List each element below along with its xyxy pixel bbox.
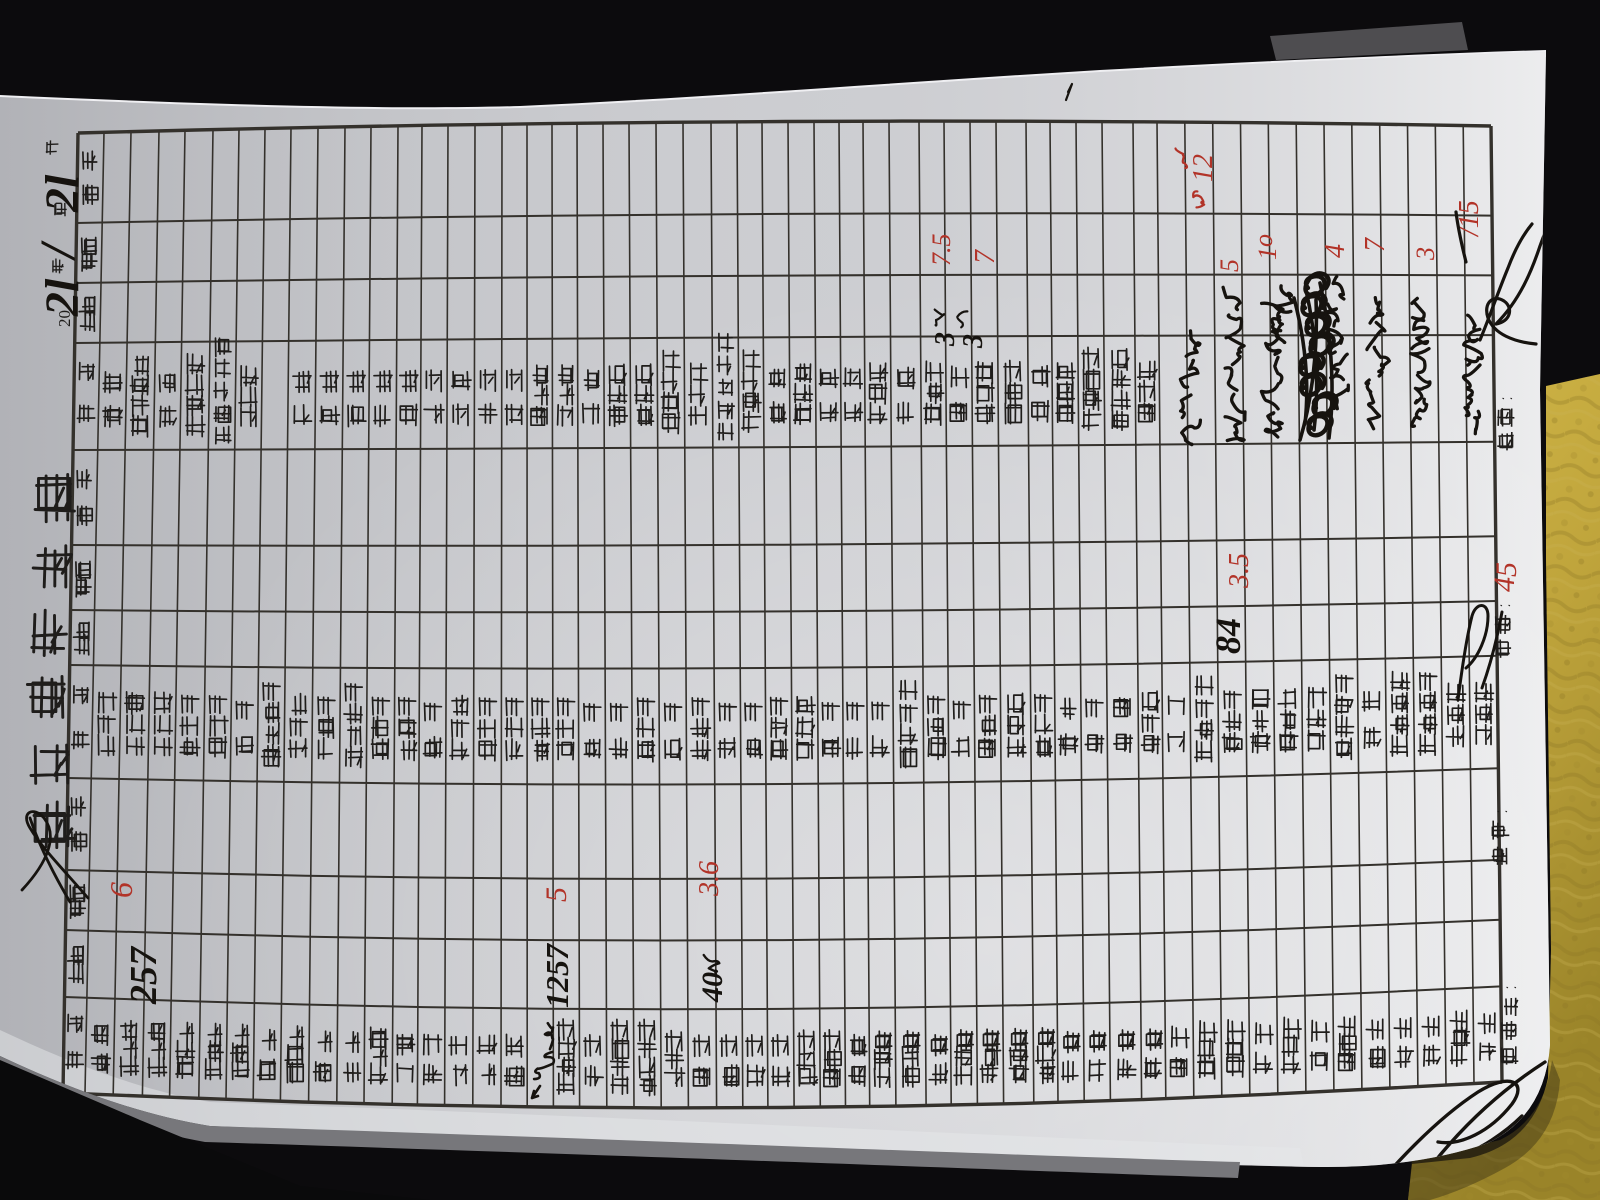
svg-text:6: 6: [103, 882, 139, 898]
svg-text:7: 7: [1360, 237, 1391, 252]
svg-text:12: 12: [1188, 154, 1219, 182]
svg-text:1o: 1o: [1249, 234, 1282, 260]
svg-text:2l: 2l: [36, 278, 89, 317]
svg-text:3: 3: [1411, 247, 1440, 261]
svg-text:84: 84: [1208, 618, 1248, 654]
svg-text:5: 5: [1215, 259, 1244, 272]
svg-text:2l: 2l: [36, 174, 89, 213]
svg-text:7.5: 7.5: [927, 234, 956, 267]
svg-text:3: 3: [958, 334, 989, 349]
svg-text:4: 4: [1320, 244, 1351, 258]
svg-text:45: 45: [1488, 562, 1523, 592]
svg-text:3.6: 3.6: [694, 861, 725, 897]
svg-text:5: 5: [540, 887, 573, 902]
svg-text:7: 7: [970, 249, 1001, 264]
svg-text:40: 40: [696, 972, 729, 1003]
svg-text:3.5: 3.5: [1224, 553, 1255, 589]
svg-text:257: 257: [123, 945, 165, 1005]
svg-text:1257: 1257: [539, 942, 575, 1008]
svg-text:3: 3: [930, 332, 961, 347]
